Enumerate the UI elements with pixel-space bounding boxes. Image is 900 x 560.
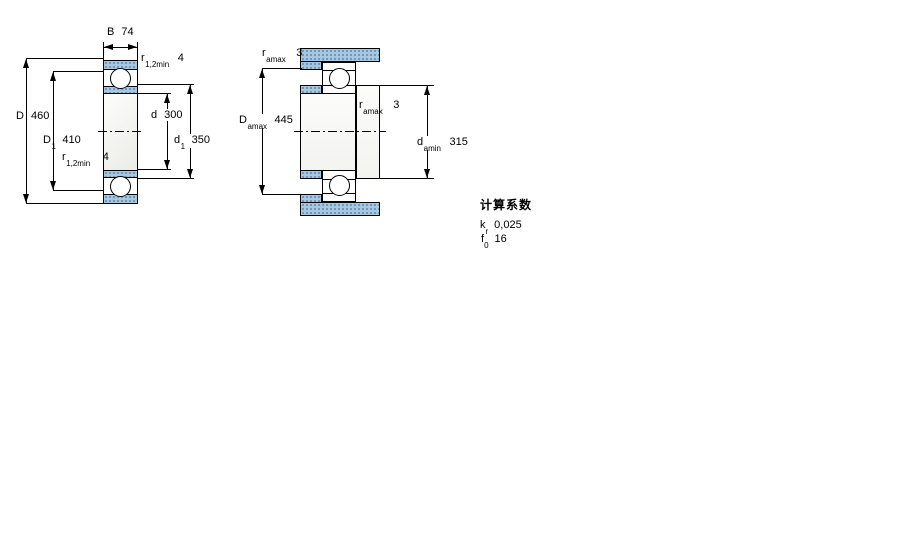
extension-line [138,178,194,179]
dim-subscript: 1,2min [145,60,169,69]
arrowhead-down [259,185,265,194]
technical-drawing-page: B74 r1,2min4 D460 D1410 r1,2min4 [0,0,900,560]
extension-line [137,42,138,60]
extension-line [262,194,323,195]
factor-symbol: k [480,219,486,231]
dim-value: 4 [178,52,184,64]
housing-shoulder-top [300,48,380,62]
extension-line [262,68,302,69]
housing-shoulder-bottom [300,202,380,216]
housing-shoulder-top-face [300,61,322,70]
arrowhead-up [50,72,56,81]
extension-line [138,84,194,85]
extension-line [53,71,103,72]
axis-centerline [294,131,386,132]
dim-value: 445 [275,114,293,126]
dim-subscript: 1,2min [66,159,90,168]
shaft-shoulder-bottom-face [300,170,322,179]
dim-subscript: 1 [181,142,185,151]
dim-value: 350 [192,134,210,146]
axis-centerline [98,131,144,132]
arrowhead-up [164,94,170,103]
dimension-line [26,58,27,204]
arrowhead-down [187,169,193,178]
ball-top [110,68,131,89]
arrowhead-down [23,194,29,203]
arrowhead-up [187,85,193,94]
ball-bottom [329,175,350,196]
dim-value: 3 [393,99,399,111]
dimension-line [427,85,428,179]
dim-subscript: amin [424,144,441,153]
factor-row-f0: f016 [481,233,507,249]
dim-value: 74 [121,26,133,38]
factor-subscript: 0 [484,241,488,250]
factor-value: 16 [495,233,507,245]
dim-symbol: D [239,114,247,126]
arrowhead-up [424,86,430,95]
bearing-right-edge [137,60,138,204]
factor-value: 0,025 [494,219,522,231]
arrowhead-down [424,169,430,178]
dim-value: 300 [164,109,182,121]
dim-label-ramax-mid: ramax3 [359,99,399,113]
dim-symbol: d [417,136,423,148]
calculation-factors-heading: 计算系数 [480,196,532,213]
dim-subscript: amax [247,122,267,131]
arrowhead-left [104,44,113,50]
dim-label-Damax: Damax445 [238,114,294,128]
extension-line [26,203,103,204]
dimension-line [190,84,191,179]
ball-top [329,68,350,89]
dim-label-B: B74 [107,26,134,38]
ball-bottom [110,176,131,197]
dim-symbol: d [174,134,180,146]
extension-line [53,190,103,191]
dim-value: 460 [31,110,49,122]
dim-subscript: 1 [51,142,55,151]
dim-symbol: d [151,109,157,121]
dim-label-r12-top: r1,2min4 [141,52,184,66]
dim-symbol: D [43,134,51,146]
shaft-body [300,94,356,170]
bearing-bore-area [104,94,137,170]
extension-line [379,178,434,179]
dim-symbol: B [107,26,114,38]
dim-value: 315 [449,136,467,148]
dimension-line [53,71,54,191]
dim-label-r12-bottom: r1,2min4 [62,151,109,165]
dim-value: 4 [103,151,109,163]
dimension-line [167,93,168,170]
dim-symbol: D [16,110,24,122]
arrowhead-right [128,44,137,50]
dim-label-ramax-top: ramax3 [262,47,302,61]
arrowhead-down [50,181,56,190]
dim-value: 410 [62,134,80,146]
dim-label-D: D460 [16,110,49,122]
dim-label-damin: damin315 [416,136,469,150]
dimension-line [262,68,263,195]
dim-label-d: d300 [150,109,183,121]
dim-label-d1: d1350 [173,134,211,148]
dim-value: 3 [296,47,302,59]
arrowhead-down [164,160,170,169]
dim-subscript: amax [363,107,383,116]
extension-line [26,58,103,59]
dim-subscript: amax [266,55,286,64]
dim-label-D1: D1410 [43,134,81,148]
arrowhead-up [259,69,265,78]
shaft-shoulder-top-face [300,85,322,94]
arrowhead-up [23,59,29,68]
